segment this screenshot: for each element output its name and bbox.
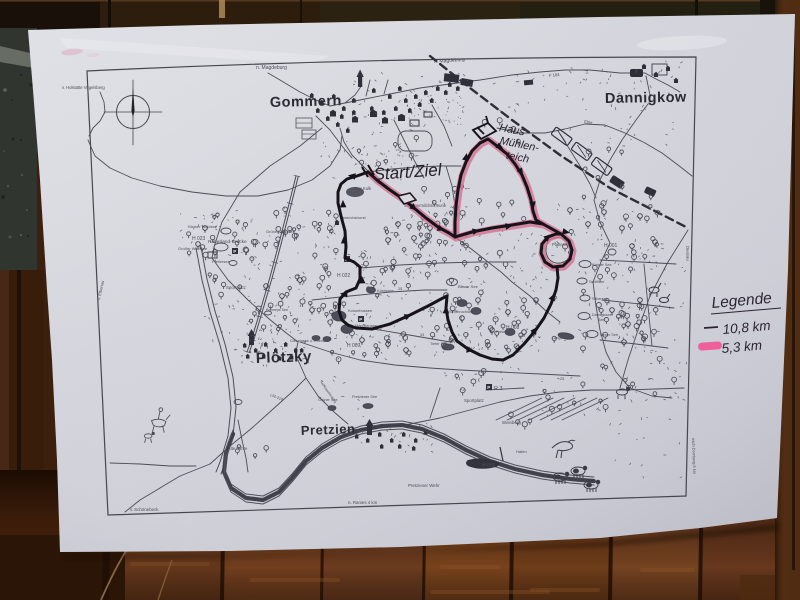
svg-text:Dannigkower: Dannigkower <box>592 313 614 317</box>
svg-text:33: 33 <box>420 333 424 337</box>
svg-text:Kolumbussee: Kolumbussee <box>348 308 373 313</box>
svg-text:n. Magdeburg: n. Magdeburg <box>256 65 287 71</box>
svg-text:P: P <box>233 249 236 254</box>
svg-text:v. Schönebeck: v. Schönebeck <box>130 507 159 512</box>
svg-text:Blauer See: Blauer See <box>458 284 479 289</box>
svg-text:25: 25 <box>560 377 564 381</box>
svg-text:Langer See: Langer See <box>552 336 572 340</box>
svg-text:Pretziener Wehr: Pretziener Wehr <box>408 483 440 488</box>
svg-text:Plötzky: Plötzky <box>256 348 313 367</box>
svg-text:Sportplatz: Sportplatz <box>226 285 246 290</box>
svg-text:H 008: H 008 <box>506 325 520 331</box>
svg-text:H 022: H 022 <box>337 273 351 279</box>
svg-text:Silbersee: Silbersee <box>592 297 608 301</box>
svg-text:Der Kulk: Der Kulk <box>355 186 372 191</box>
svg-text:Heinrichshorst: Heinrichshorst <box>340 215 366 220</box>
svg-text:Königsee: Königsee <box>377 288 394 293</box>
svg-text:H 007: H 007 <box>347 343 361 349</box>
svg-text:H 001: H 001 <box>604 243 618 249</box>
svg-text:Pretzien: Pretzien <box>301 421 356 438</box>
svg-text:Haberland-Brücke: Haberland-Brücke <box>208 239 247 245</box>
svg-text:Neuer See: Neuer See <box>600 333 618 337</box>
svg-text:Großer Waldsee: Großer Waldsee <box>178 246 208 251</box>
svg-text:H 023: H 023 <box>192 236 206 242</box>
svg-text:R 3: R 3 <box>494 386 503 392</box>
svg-text:Pretziener See: Pretziener See <box>352 395 377 399</box>
svg-text:See: See <box>598 318 604 322</box>
svg-text:Tiefer See: Tiefer See <box>430 342 447 346</box>
svg-text:Schilfsee: Schilfsee <box>589 280 604 284</box>
svg-text:H 009: H 009 <box>482 463 496 469</box>
svg-text:Dessau: Dessau <box>685 246 691 262</box>
svg-text:Hafen: Hafen <box>516 449 527 454</box>
svg-text:Weinberg: Weinberg <box>502 420 521 425</box>
svg-text:Kleiner Waldsee: Kleiner Waldsee <box>188 224 218 229</box>
svg-text:Kleiner See: Kleiner See <box>592 263 612 267</box>
svg-text:Steinbruchseen: Steinbruchseen <box>448 309 476 314</box>
svg-text:Alte Fähre: Alte Fähre <box>228 446 248 451</box>
svg-text:Pollmeys See: Pollmeys See <box>266 308 288 312</box>
svg-text:Sportplatz: Sportplatz <box>464 398 484 403</box>
svg-text:Grüner Waldsee: Grüner Waldsee <box>266 229 296 234</box>
svg-text:Gieselasse u. Edersee: Gieselasse u. Edersee <box>290 339 328 343</box>
svg-text:v. Holstätte Vogelsberg: v. Holstätte Vogelsberg <box>62 85 105 90</box>
svg-text:Pfeilersee: Pfeilersee <box>212 259 231 264</box>
svg-text:Gommern: Gommern <box>270 93 342 111</box>
svg-text:P: P <box>359 317 362 322</box>
svg-text:n. Ranies 4 km: n. Ranies 4 km <box>348 500 378 505</box>
svg-text:25: 25 <box>398 287 402 291</box>
svg-text:P: P <box>487 385 490 390</box>
svg-text:Dannigkow: Dannigkow <box>605 90 687 107</box>
